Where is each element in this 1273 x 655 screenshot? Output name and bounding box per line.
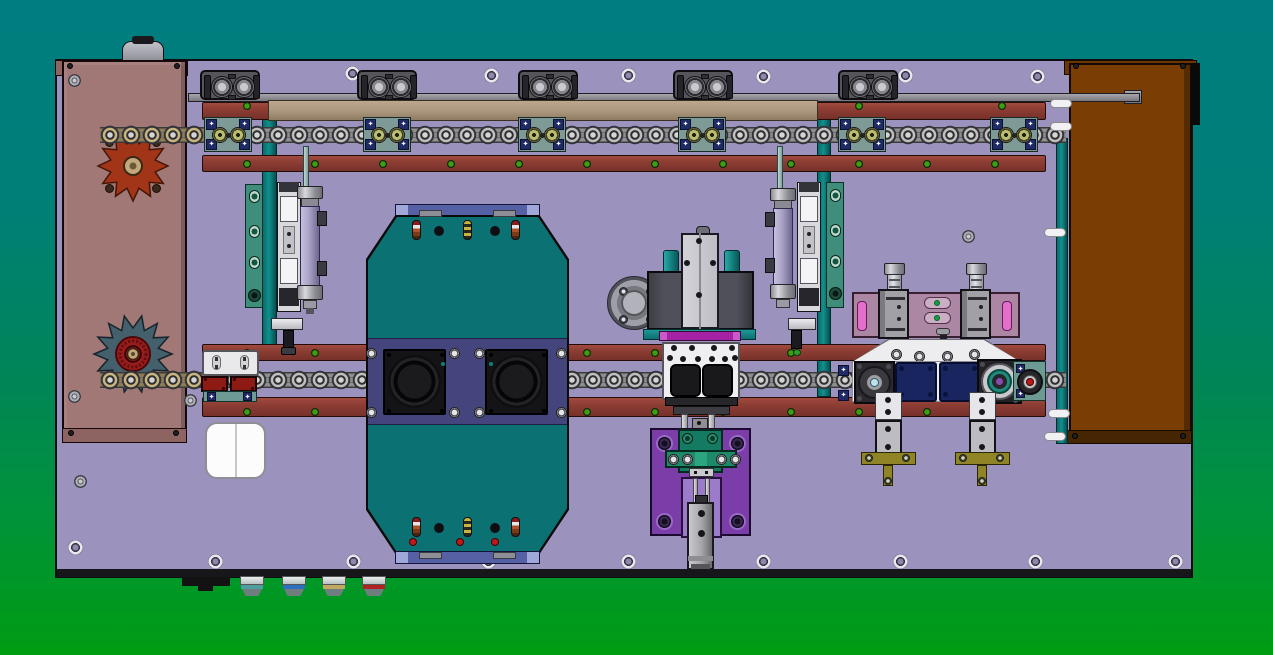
fitting-body [242,589,262,596]
pin-marker [491,538,499,546]
air-cylinder [773,208,793,286]
tdark-detail [829,287,842,300]
pneumatic-cylinder-block [357,70,417,100]
ce-detail [842,75,849,99]
rail-screw [855,102,863,110]
plate-mounting-hole [621,554,636,569]
cn-detail [866,74,874,79]
detail [799,182,819,192]
plate-mounting-hole [484,68,499,83]
cn-detail [385,74,393,79]
base-plate-bottom-edge [57,569,1191,577]
index-pin [511,220,520,240]
sscrew-detail [730,454,741,465]
detail [857,396,862,401]
band-screw [366,348,377,359]
dscrew2-detail [885,409,891,415]
rail-screw [447,160,455,168]
cn-detail [228,95,236,100]
detail [899,366,904,371]
detail [688,556,713,561]
chain-guide-bearing-block: ✦✦✦✦ [204,117,252,152]
detail [283,226,295,254]
detail [700,133,705,138]
detail [542,353,546,357]
detail [243,357,246,361]
tdark-detail [248,289,261,302]
detail [235,424,237,477]
panel-screw [67,63,73,69]
cn-detail [546,74,554,79]
rail-screw [243,160,251,168]
roller-detail [544,127,560,143]
detail [860,133,865,138]
detail [691,564,710,569]
slot-pill [1050,122,1072,131]
fitting-cap [322,576,346,585]
detail [934,300,940,306]
detail [979,305,983,309]
slot-pill [1048,409,1070,418]
panel-edge-shadow [1191,63,1200,125]
roller-detail [704,127,720,143]
detail [707,433,718,444]
rail-screw [855,160,863,168]
panel-screw [174,63,180,69]
dscrew2-detail [979,409,985,415]
detail [807,244,811,248]
plate-mounting-hole [1030,69,1045,84]
detail [287,232,291,236]
bbend-detail [527,205,539,216]
detail [800,258,818,284]
roller-chain [100,369,212,391]
roller-detail [389,127,405,143]
rail-screw [991,160,999,168]
detail [897,317,901,321]
dscrew2-detail [696,238,702,244]
dscrew2-detail [732,355,738,361]
roller-detail [1016,127,1032,143]
dscrew2-detail [729,345,735,351]
plate-mounting-hole [1168,554,1183,569]
dscrew2-detail [667,355,673,361]
detail [765,258,775,273]
fitting-stripe [363,585,385,589]
cylinder-cap [770,284,796,299]
detail [980,362,985,367]
bottom-clamp-bar [395,551,540,564]
cc-detail [233,76,255,98]
detail [440,409,444,413]
detail [279,288,299,306]
oval-detail [249,190,260,203]
detail [695,452,707,466]
dscrew2-detail [979,397,985,403]
dscrew2-detail [885,444,891,450]
detail [776,299,790,308]
fitting-body [324,589,344,596]
dscrew2-detail [680,356,686,362]
oscrew-detail [884,477,892,485]
detail [880,291,885,337]
detail [222,387,225,390]
panel-screw [68,430,74,436]
fitting-cap [240,576,264,585]
detail [287,244,291,248]
hanger-rod [303,146,309,188]
detail [928,392,933,397]
fitting-stripe [283,585,305,589]
band-screw [449,407,460,418]
detail [765,212,775,227]
oval-detail [249,225,260,238]
detail [306,308,314,314]
motor-cap [122,41,164,62]
detail [279,182,299,192]
corner-marker: ✦ [243,392,252,401]
ce-detail [361,75,368,99]
cc-detail [551,76,573,98]
frame-bar-right [1056,138,1068,444]
chain-guide-bearing-block: ✦✦✦✦ [518,117,566,152]
locating-hole [490,226,500,236]
detail [733,332,740,340]
dscrew2-detail [979,444,985,450]
fitting-cap [282,576,306,585]
bbtab-detail [493,552,516,559]
rail-screw [243,408,251,416]
detail [803,226,815,254]
bbtab-detail [493,210,516,217]
rail-screw [651,160,659,168]
detail [215,365,218,369]
cc-detail [390,76,412,98]
roller-detail [230,127,246,143]
chain-guide-bearing-block: ✦✦✦✦ [838,117,886,152]
top-rail-lower [202,155,1046,172]
band-screw [366,407,377,418]
rail-screw [719,160,727,168]
panel-screw [1180,433,1186,439]
detail [699,233,701,329]
fitting-body [364,589,384,596]
detail [489,409,493,413]
dscrew2-detail [979,426,985,432]
cross-bracket [271,318,303,330]
rail-screw [583,408,591,416]
pneumatic-cylinder-block [838,70,898,100]
plate-mounting-hole [893,554,908,569]
rail-screw [651,349,659,357]
rail-screw [787,160,795,168]
dscrew2-detail [695,356,701,362]
sscrew-detail [682,454,693,465]
plate-mounting-hole [346,554,361,569]
oscrew-detail [865,454,873,462]
rail-screw [998,102,1006,110]
bbtab-detail [419,210,442,217]
oval-detail [830,189,841,202]
cad-machine-scene: ✦✦✦✦✦✦✦✦✦✦✦✦✦✦✦✦✦✦✦✦✦✦✦✦ ✦ ✦ [0,0,1273,655]
bore-opening [388,355,441,408]
pin-marker [409,538,417,546]
detail [886,328,905,331]
oscrew-detail [959,454,967,462]
bore-opening [490,355,543,408]
pink-slot [1002,301,1012,331]
detail [489,362,493,366]
detail [897,305,901,309]
cn-detail [866,95,874,100]
hanger-rod [777,146,783,190]
detail [793,349,801,356]
dscrew2-detail [684,260,690,266]
plate-mounting-hole [1028,554,1043,569]
rail-screw [583,160,591,168]
detail [682,433,693,444]
dscrew2-detail [885,397,891,403]
sscrew-detail [668,454,679,465]
rail-screw [923,408,931,416]
detail [233,378,236,381]
rail-screw [311,408,319,416]
fitting-cap [362,576,386,585]
pbolt-detail [729,513,746,530]
fitting-stripe [323,585,345,589]
dscrew2-detail [696,292,702,298]
detail [489,353,493,357]
cn-detail [701,95,709,100]
detail [807,232,811,236]
ce-detail [522,75,529,99]
locating-hole [434,523,444,533]
detail [857,364,862,369]
detail [204,378,207,381]
pbolt-detail [656,513,673,530]
locating-hole [490,523,500,533]
oscrew-detail [996,454,1004,462]
chain-guide-bearing-block: ✦✦✦✦ [990,117,1038,152]
detail [698,530,705,537]
oscrew-detail [902,454,910,462]
detail [979,317,983,321]
oval-detail [830,255,841,268]
chain-guide-bearing-block: ✦✦✦✦ [363,117,411,152]
ce-detail [677,75,684,99]
plate-mounting-hole [208,554,223,569]
pink-slot [857,301,867,331]
detail [889,286,900,288]
oscrew-detail [978,477,986,485]
ce-detail [204,75,211,99]
motor-cap-top [132,36,154,44]
dscrew2-detail [885,426,891,432]
carriage-top [202,350,259,376]
band-screw [474,407,485,418]
rail-screw [855,408,863,416]
hex-screw [68,390,81,403]
corner-marker: ✦ [838,390,849,401]
detail [251,387,254,390]
detail [1012,133,1017,138]
slot-pill [1044,228,1066,237]
panel-screw [1073,63,1079,69]
cross-bracket [788,318,816,330]
fitting-body [284,589,304,596]
guide-bush [663,250,679,273]
detail [968,328,987,331]
detail [943,366,948,371]
hex-screw [962,230,975,243]
panel-bottom-bar [62,428,187,443]
bottom-bracket-tab [198,585,213,591]
dscrew2-detail [722,356,728,362]
sscrew-detail [891,349,902,360]
cn-detail [701,74,709,79]
detail [280,196,298,222]
detail [689,468,714,477]
detail [697,421,701,425]
cn-detail [385,95,393,100]
detail [1026,378,1034,386]
bbend-detail [396,205,408,216]
index-pin [511,517,520,537]
detail [317,261,327,276]
oval-detail [249,256,260,269]
rail-screw [651,408,659,416]
detail [886,297,905,300]
cn-detail [546,95,554,100]
dscrew2-detail [709,356,715,362]
detail [943,392,948,397]
detail [934,315,940,321]
detail [281,347,296,355]
detail [665,397,738,406]
roller-chain [100,124,212,146]
detail [130,163,137,170]
detail [215,357,218,361]
detail [280,258,298,284]
detail [968,297,987,300]
guide-bush [724,250,740,273]
detail [996,378,1003,385]
cylinder-cap [297,285,323,300]
clamp-strip [659,331,741,341]
rail-screw [311,349,319,357]
detail [886,364,891,369]
cn-detail [228,74,236,79]
rail-screw [583,349,591,357]
detail [936,328,950,335]
hex-screw [68,74,81,87]
band-screw [449,348,460,359]
detail [243,365,246,369]
suction-pad [702,364,733,397]
detail [387,353,391,357]
dscrew2-detail [710,260,716,266]
detail [971,286,982,288]
band-screw [474,348,485,359]
suction-pad [670,364,701,397]
panel-bottom-bar [1066,430,1192,444]
dscrew2-detail [711,345,717,351]
band-screw [556,407,567,418]
detail [962,291,967,337]
detail [799,288,819,306]
cc-detail [871,76,893,98]
detail [928,366,933,371]
detail [440,353,444,357]
hex-screw [74,475,87,488]
detail [621,290,647,316]
detail [317,211,327,226]
slot-pill [1044,432,1066,441]
slot-pill [1050,99,1072,108]
detail [889,279,900,281]
detail [385,133,390,138]
chain-guide-bearing-block: ✦✦✦✦ [678,117,726,152]
detail [660,332,667,340]
rail-screw [923,160,931,168]
oval-detail [830,224,841,237]
pneumatic-cylinder-block [200,70,260,100]
detail [800,196,818,222]
index-pin [463,220,472,240]
dscrew2-detail [689,345,695,351]
detail [542,409,546,413]
fitting-stripe [241,585,263,589]
pneumatic-cylinder-block [518,70,578,100]
detail [694,471,697,474]
bbend-detail [396,552,408,563]
detail [387,409,391,413]
detail [791,330,802,349]
plate-mounting-hole [621,68,636,83]
band-screw [556,348,567,359]
detail [226,133,231,138]
pin-marker [456,538,464,546]
panel-body [1069,63,1192,432]
rail-screw [379,160,387,168]
hex-screw [184,394,197,407]
index-pin [412,220,421,240]
plate-mounting-hole [756,554,771,569]
cc-detail [706,76,728,98]
panel-screw [1072,433,1078,439]
roller-detail [864,127,880,143]
detail [131,352,135,356]
bbend-detail [527,552,539,563]
index-pin [412,517,421,537]
pneumatic-cylinder-block [673,70,733,100]
detail [619,315,628,324]
detail [540,133,545,138]
rail-screw [243,102,251,110]
plate-mounting-hole [898,68,913,83]
detail [705,471,708,474]
locating-hole [434,226,444,236]
rail-screw [515,160,523,168]
panel-screw [1180,63,1186,69]
plate-mounting-hole [756,69,771,84]
detail [870,378,879,387]
dscrew2-detail [671,345,677,351]
rail-screw [311,160,319,168]
bbtab-detail [419,552,442,559]
corner-marker: ✦ [838,365,849,376]
rail-screw [787,408,795,416]
